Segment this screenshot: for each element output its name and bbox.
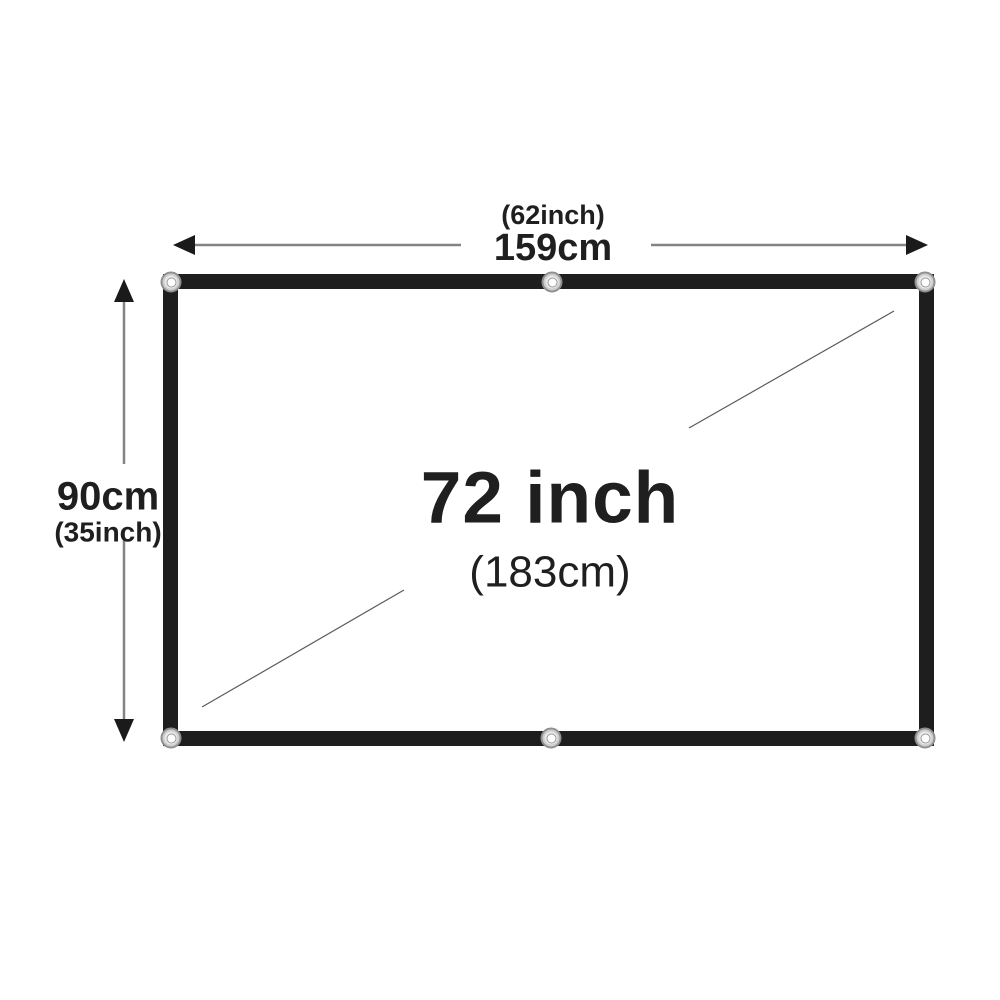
arrowhead-down-icon xyxy=(114,719,134,742)
arrowhead-left-icon xyxy=(173,235,195,255)
grommet-icon xyxy=(915,728,936,749)
grommet-icon xyxy=(161,728,182,749)
diagonal-cm-text: (183cm) xyxy=(421,551,680,595)
width-inches-text: (62inch) xyxy=(494,201,612,229)
diagonal-inches-text: 72 inch xyxy=(421,462,680,535)
grommet-icon xyxy=(541,728,562,749)
diagonal-line-upper xyxy=(689,311,894,428)
height-cm-text: 90cm xyxy=(54,475,161,517)
product-diagram: (62inch) 159cm 90cm (35inch) 72 inch (18… xyxy=(0,0,1000,1000)
grommet-icon xyxy=(915,272,936,293)
height-inches-text: (35inch) xyxy=(54,517,161,546)
grommet-icon xyxy=(542,272,563,293)
arrowhead-up-icon xyxy=(114,279,134,302)
height-dimension-label: 90cm (35inch) xyxy=(54,475,161,546)
width-cm-text: 159cm xyxy=(494,229,612,267)
width-dimension-label: (62inch) 159cm xyxy=(494,201,612,267)
diagonal-line-lower xyxy=(202,590,404,707)
grommet-icon xyxy=(161,272,182,293)
diagonal-dimension-label: 72 inch (183cm) xyxy=(421,462,680,595)
arrowhead-right-icon xyxy=(906,235,928,255)
